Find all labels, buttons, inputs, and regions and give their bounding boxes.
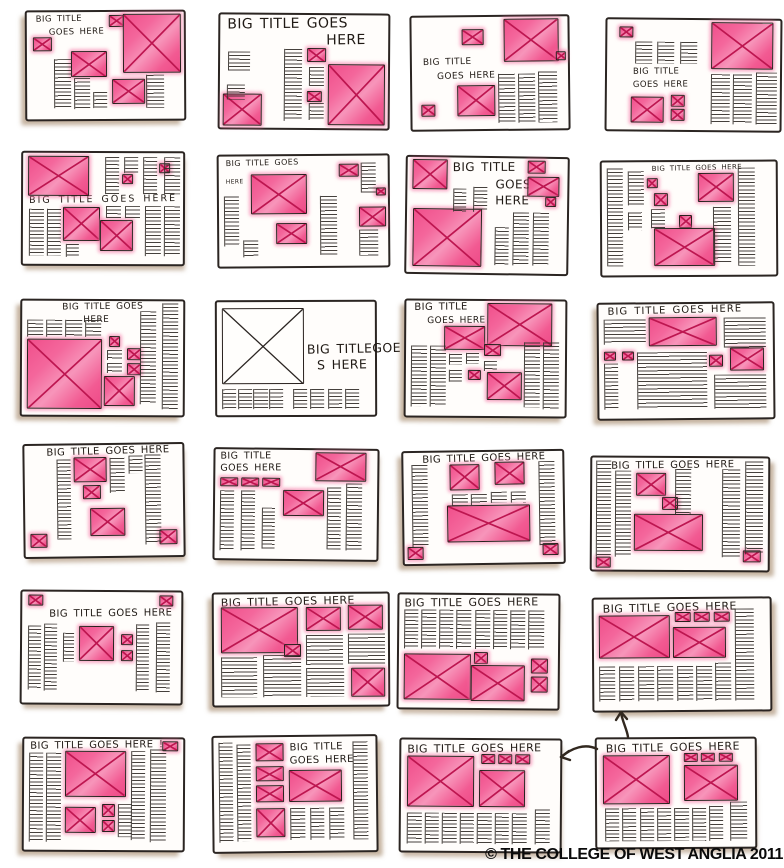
image-placeholder bbox=[339, 163, 359, 176]
image-placeholder bbox=[65, 751, 126, 797]
text-column-block bbox=[326, 487, 341, 549]
image-placeholder bbox=[307, 91, 322, 102]
text-column-block bbox=[498, 74, 516, 123]
thumbnail-title-line: BIG TITLE bbox=[633, 68, 679, 77]
layout-thumbnail-r3c1: BIG TITLE GOESHERE bbox=[20, 299, 186, 418]
text-column-block bbox=[452, 494, 468, 505]
image-placeholder bbox=[673, 626, 726, 657]
text-column-block bbox=[421, 609, 436, 649]
text-column-block bbox=[118, 805, 132, 837]
text-column-block bbox=[484, 361, 497, 371]
image-placeholder bbox=[306, 607, 341, 630]
image-placeholder bbox=[220, 478, 238, 487]
text-column-block bbox=[306, 668, 344, 697]
thumbnail-title-line: GOES HERE bbox=[633, 80, 688, 89]
text-column-block bbox=[477, 813, 492, 844]
text-column-block bbox=[715, 663, 731, 701]
text-column-block bbox=[745, 462, 763, 555]
thumbnail-title-line: GOES HERE bbox=[437, 71, 496, 82]
image-placeholder bbox=[701, 753, 715, 762]
thumbnail-title-line: GOES bbox=[495, 178, 531, 190]
text-column-block bbox=[136, 624, 149, 691]
text-column-block bbox=[310, 807, 325, 839]
text-column-block bbox=[493, 610, 508, 650]
wireframe-sketch-sheet: BIG TITLEGOES HEREBIG TITLE GOESHEREBIG … bbox=[0, 0, 784, 868]
image-placeholder bbox=[479, 770, 525, 807]
image-placeholder bbox=[33, 37, 52, 51]
image-placeholder bbox=[649, 316, 717, 346]
text-column-block bbox=[657, 808, 671, 840]
image-placeholder bbox=[636, 472, 666, 496]
image-placeholder bbox=[634, 514, 703, 551]
text-column-block bbox=[348, 634, 385, 664]
text-column-block bbox=[146, 75, 163, 108]
text-column-block bbox=[219, 491, 234, 551]
image-placeholder bbox=[468, 370, 481, 380]
layout-thumbnail-r3c3: BIG TITLEGOES HERE bbox=[404, 298, 568, 418]
text-column-block bbox=[329, 807, 344, 839]
text-column-block bbox=[411, 465, 428, 547]
image-placeholder bbox=[531, 659, 549, 674]
thumbnail-title-line: BIG TITLE bbox=[290, 742, 344, 753]
text-column-block bbox=[755, 72, 776, 125]
text-column-block bbox=[466, 353, 479, 365]
text-column-block bbox=[657, 42, 674, 64]
thumbnail-title-line: S HERE bbox=[316, 358, 366, 372]
layout-thumbnail-r5c1: BIG TITLE GOES HERE bbox=[20, 589, 184, 705]
image-placeholder bbox=[403, 653, 470, 700]
text-column-block bbox=[29, 753, 44, 842]
text-column-block bbox=[236, 744, 252, 841]
image-placeholder bbox=[481, 754, 495, 764]
text-column-block bbox=[604, 364, 618, 410]
text-column-block bbox=[107, 350, 122, 360]
image-placeholder bbox=[256, 766, 284, 782]
text-column-block bbox=[222, 389, 236, 409]
text-column-block bbox=[238, 389, 252, 409]
image-placeholder bbox=[684, 765, 738, 801]
text-column-block bbox=[542, 343, 558, 410]
text-column-block bbox=[124, 158, 138, 174]
text-column-block bbox=[221, 657, 258, 697]
image-placeholder bbox=[359, 206, 386, 227]
thumbnail-title-line: GOES HERE bbox=[49, 28, 105, 38]
text-column-block bbox=[262, 507, 275, 549]
image-placeholder bbox=[102, 820, 115, 832]
text-column-block bbox=[605, 808, 619, 840]
text-column-block bbox=[733, 74, 752, 125]
text-column-block bbox=[149, 749, 165, 842]
text-column-block bbox=[145, 454, 162, 544]
thumbnail-title-line: BIG TITLE GOES HERE bbox=[422, 452, 545, 466]
thumbnail-title-line: BIG TITLE bbox=[452, 161, 515, 173]
image-placeholder bbox=[654, 227, 715, 266]
text-column-block bbox=[143, 158, 158, 195]
thumbnail-title-line: BIG TITLE bbox=[36, 15, 82, 25]
image-placeholder bbox=[545, 197, 556, 207]
image-placeholder bbox=[470, 665, 524, 702]
text-column-block bbox=[491, 492, 507, 503]
text-column-block bbox=[494, 227, 509, 265]
text-column-block bbox=[144, 206, 160, 256]
text-column-block bbox=[510, 610, 525, 650]
thumbnail-title-line: BIG TITLE GOES HERE bbox=[49, 608, 172, 619]
text-column-block bbox=[107, 363, 122, 373]
text-column-block bbox=[709, 806, 723, 841]
image-placeholder bbox=[27, 338, 103, 409]
text-column-block bbox=[63, 633, 74, 662]
thumbnail-title-line: BIG TITLE GOES bbox=[62, 303, 143, 313]
image-placeholder bbox=[413, 208, 483, 268]
image-placeholder bbox=[122, 174, 133, 184]
image-placeholder bbox=[73, 457, 106, 482]
text-column-block bbox=[453, 189, 466, 212]
text-column-block bbox=[651, 210, 665, 228]
text-column-block bbox=[228, 52, 250, 71]
text-column-block bbox=[359, 229, 378, 256]
thumbnail-title-line: BIG TITLE GOES HERE bbox=[652, 164, 742, 173]
image-placeholder bbox=[647, 178, 657, 188]
text-column-block bbox=[410, 345, 426, 406]
image-placeholder bbox=[79, 626, 114, 661]
text-column-block bbox=[46, 753, 61, 842]
text-column-block bbox=[155, 622, 170, 692]
text-column-block bbox=[283, 49, 302, 121]
text-column-block bbox=[494, 813, 509, 844]
text-column-block bbox=[534, 809, 550, 845]
text-column-block bbox=[599, 666, 615, 702]
text-column-block bbox=[475, 610, 490, 650]
layout-thumbnail-r1c3: BIG TITLEGOES HERE bbox=[409, 14, 570, 132]
image-placeholder bbox=[487, 372, 522, 400]
text-column-block bbox=[722, 469, 740, 556]
image-placeholder bbox=[531, 677, 549, 693]
image-placeholder bbox=[30, 533, 48, 548]
image-placeholder bbox=[528, 161, 546, 174]
image-placeholder bbox=[29, 595, 43, 606]
image-placeholder bbox=[631, 96, 664, 123]
text-column-block bbox=[164, 206, 180, 256]
text-column-block bbox=[677, 666, 693, 702]
arrow-left-icon bbox=[561, 746, 597, 760]
text-column-block bbox=[309, 67, 324, 86]
image-placeholder bbox=[102, 804, 115, 816]
image-placeholder bbox=[654, 193, 668, 207]
text-column-block bbox=[622, 808, 636, 840]
image-placeholder bbox=[447, 505, 530, 543]
image-placeholder bbox=[555, 51, 566, 60]
text-column-block bbox=[310, 389, 324, 409]
layout-thumbnail-r3c4: BIG TITLE GOES HERE bbox=[596, 301, 775, 421]
text-column-block bbox=[263, 655, 301, 697]
image-placeholder bbox=[121, 634, 134, 645]
thumbnail-title-line: HERE bbox=[225, 179, 243, 185]
image-placeholder bbox=[474, 651, 488, 664]
layout-thumbnail-r3c2: BIG TITLEGOES HERE bbox=[215, 300, 377, 418]
image-placeholder-unshaded bbox=[222, 308, 304, 385]
image-placeholder bbox=[527, 177, 559, 197]
text-column-block bbox=[54, 59, 72, 108]
text-column-block bbox=[130, 751, 145, 840]
image-placeholder bbox=[122, 14, 180, 73]
text-column-block bbox=[224, 196, 240, 247]
text-column-block bbox=[66, 320, 82, 337]
text-column-block bbox=[449, 370, 462, 382]
text-column-block bbox=[27, 320, 43, 337]
text-column-block bbox=[269, 389, 283, 409]
text-column-block bbox=[533, 213, 550, 266]
layout-thumbnail-r6c3: BIG TITLE GOES HERE bbox=[399, 737, 563, 853]
image-placeholder bbox=[595, 556, 611, 567]
text-column-block bbox=[28, 626, 41, 689]
image-placeholder bbox=[288, 770, 342, 802]
image-placeholder bbox=[63, 207, 100, 240]
text-column-block bbox=[595, 461, 611, 556]
image-placeholder bbox=[622, 351, 634, 360]
text-column-block bbox=[240, 491, 255, 551]
text-column-block bbox=[640, 808, 654, 840]
text-column-block bbox=[637, 352, 707, 410]
text-column-block bbox=[407, 813, 422, 844]
text-column-block bbox=[730, 801, 748, 840]
text-column-block bbox=[320, 195, 337, 255]
layout-thumbnail-r6c4: BIG TITLE GOES HERE bbox=[595, 737, 758, 850]
thumbnail-title-line: HERE bbox=[495, 194, 529, 206]
thumbnail-title-line: BIG TITLE GOES bbox=[227, 17, 348, 32]
image-placeholder bbox=[684, 753, 698, 762]
text-column-block bbox=[607, 168, 623, 266]
text-column-block bbox=[538, 461, 555, 546]
image-placeholder bbox=[120, 650, 133, 661]
text-column-block bbox=[243, 240, 258, 258]
image-placeholder bbox=[348, 605, 383, 630]
layout-thumbnail-r6c1: BIG TITLE GOES HERE ! bbox=[22, 737, 186, 853]
image-placeholder bbox=[729, 348, 764, 371]
text-column-block bbox=[139, 311, 156, 403]
text-column-block bbox=[528, 610, 544, 650]
image-placeholder bbox=[671, 109, 685, 121]
text-column-block bbox=[510, 491, 526, 502]
text-column-block bbox=[425, 813, 440, 844]
image-placeholder bbox=[494, 461, 525, 485]
text-column-block bbox=[518, 74, 536, 123]
text-column-block bbox=[692, 808, 706, 840]
text-column-block bbox=[346, 483, 363, 551]
image-placeholder bbox=[241, 478, 259, 487]
image-placeholder bbox=[516, 755, 530, 765]
image-placeholder bbox=[90, 508, 125, 536]
image-placeholder bbox=[262, 478, 280, 487]
image-placeholder bbox=[283, 490, 324, 517]
image-placeholder bbox=[28, 156, 89, 196]
image-placeholder bbox=[71, 51, 107, 78]
text-column-block bbox=[162, 304, 179, 410]
thumbnail-title-line: GOES HERE bbox=[427, 317, 485, 327]
image-placeholder bbox=[316, 452, 367, 481]
image-placeholder bbox=[603, 755, 670, 804]
text-column-block bbox=[512, 212, 529, 265]
text-column-block bbox=[47, 208, 62, 256]
image-placeholder bbox=[104, 376, 135, 406]
text-column-block bbox=[680, 42, 697, 64]
image-placeholder bbox=[444, 326, 485, 350]
layout-thumbnail-r6c2: BIG TITLEGOES HERE bbox=[211, 734, 378, 854]
thumbnail-title-line: BIG TITLE bbox=[423, 58, 472, 68]
layout-thumbnail-r4c2: BIG TITLEGOES HERE bbox=[212, 447, 379, 562]
layout-thumbnail-r5c2: BIG TITLE GOES HERE bbox=[212, 592, 391, 708]
thumbnail-title-line: BIG TITLE GOES HERE bbox=[29, 194, 177, 206]
text-column-block bbox=[523, 343, 539, 407]
layout-thumbnail-r4c4: BIG TITLE GOES HERE bbox=[590, 456, 771, 573]
thumbnail-title-line: GOES HERE bbox=[290, 755, 354, 767]
text-column-block bbox=[293, 389, 307, 409]
text-column-block bbox=[737, 167, 755, 265]
text-column-block bbox=[635, 41, 652, 63]
image-placeholder bbox=[679, 215, 693, 227]
image-placeholder bbox=[599, 615, 670, 659]
text-column-block bbox=[430, 345, 446, 406]
text-column-block bbox=[674, 808, 688, 840]
layout-thumbnail-r2c2: BIG TITLE GOESHERE bbox=[217, 153, 391, 268]
text-column-block bbox=[290, 808, 305, 840]
text-column-block bbox=[306, 635, 343, 665]
image-placeholder bbox=[160, 530, 178, 545]
text-column-block bbox=[361, 162, 376, 193]
text-column-block bbox=[106, 206, 120, 218]
thumbnail-title-line: BIG TITLE bbox=[414, 303, 468, 314]
text-column-block bbox=[253, 389, 267, 409]
text-column-block bbox=[628, 212, 642, 230]
text-column-block bbox=[44, 624, 57, 691]
layout-thumbnail-r2c4: BIG TITLE GOES HERE bbox=[600, 160, 779, 278]
image-placeholder bbox=[65, 807, 95, 834]
image-placeholder bbox=[498, 755, 512, 765]
text-column-block bbox=[459, 813, 474, 844]
copyright-notice: © THE COLLEGE OF WEST ANGLIA 2011 bbox=[485, 846, 783, 864]
text-column-block bbox=[164, 158, 180, 195]
text-column-block bbox=[85, 320, 101, 337]
image-placeholder bbox=[484, 344, 502, 357]
text-column-block bbox=[345, 389, 359, 409]
image-placeholder bbox=[457, 85, 495, 116]
text-column-block bbox=[74, 78, 90, 109]
layout-thumbnail-r4c1: BIG TITLE GOES HERE bbox=[22, 442, 185, 559]
text-column-block bbox=[604, 319, 646, 344]
image-placeholder bbox=[694, 612, 710, 622]
image-placeholder bbox=[461, 29, 483, 45]
image-placeholder bbox=[407, 755, 474, 807]
text-column-block bbox=[442, 813, 457, 844]
image-placeholder bbox=[718, 753, 732, 762]
image-placeholder bbox=[422, 105, 436, 116]
image-placeholder bbox=[450, 464, 481, 490]
image-placeholder bbox=[83, 485, 101, 500]
layout-thumbnail-r1c4: BIG TITLEGOES HERE bbox=[605, 17, 783, 133]
text-column-block bbox=[713, 207, 731, 264]
text-column-block bbox=[619, 666, 635, 702]
image-placeholder bbox=[352, 668, 385, 697]
image-placeholder bbox=[709, 355, 723, 367]
thumbnail-title-line: BIG TITLEGOE bbox=[307, 341, 401, 355]
text-column-block bbox=[218, 742, 234, 842]
layout-thumbnail-r2c1: BIG TITLE GOES HERE bbox=[21, 151, 185, 267]
text-column-block bbox=[696, 665, 712, 701]
image-placeholder bbox=[112, 79, 145, 104]
layout-thumbnail-r2c3: BIG TITLEGOESHERE bbox=[404, 155, 570, 276]
text-column-block bbox=[105, 157, 120, 194]
thumbnail-title-line: BIG TITLE GOES HERE bbox=[404, 597, 538, 609]
image-placeholder bbox=[412, 159, 448, 189]
layout-thumbnail-r1c1: BIG TITLEGOES HERE bbox=[25, 10, 187, 122]
image-placeholder bbox=[503, 19, 558, 62]
image-placeholder bbox=[376, 187, 386, 195]
text-column-block bbox=[638, 666, 654, 702]
text-column-block bbox=[473, 187, 488, 212]
text-column-block bbox=[456, 609, 471, 649]
image-placeholder bbox=[251, 174, 307, 215]
text-column-block bbox=[56, 460, 71, 540]
layout-thumbnail-r4c3: BIG TITLE GOES HERE bbox=[401, 449, 566, 566]
image-placeholder bbox=[100, 220, 134, 251]
text-column-block bbox=[46, 320, 62, 337]
image-placeholder bbox=[256, 808, 285, 838]
text-column-block bbox=[110, 458, 125, 493]
thumbnail-title-line: HERE bbox=[326, 33, 366, 47]
arrow-up-icon bbox=[616, 712, 628, 737]
text-column-block bbox=[129, 456, 143, 474]
text-column-block bbox=[449, 354, 462, 366]
image-placeholder bbox=[159, 596, 173, 607]
layout-thumbnail-r1c2: BIG TITLE GOESHERE bbox=[218, 12, 391, 130]
image-placeholder bbox=[675, 612, 691, 622]
text-column-block bbox=[724, 317, 766, 348]
layout-thumbnail-r5c3: BIG TITLE GOES HERE bbox=[396, 592, 560, 710]
image-placeholder bbox=[408, 547, 424, 559]
thumbnail-title-line: BIG TITLE GOES HERE bbox=[408, 743, 542, 755]
text-column-block bbox=[714, 374, 766, 409]
image-placeholder bbox=[713, 612, 729, 622]
text-column-block bbox=[439, 609, 454, 649]
text-column-block bbox=[471, 494, 487, 505]
thumbnail-title-line: BIG TITLE GOES bbox=[225, 159, 298, 169]
text-column-block bbox=[512, 813, 527, 844]
image-placeholder bbox=[327, 64, 385, 125]
text-column-block bbox=[675, 469, 691, 514]
image-placeholder bbox=[277, 223, 308, 244]
thumbnail-title-line: GOES HERE bbox=[220, 463, 281, 473]
text-column-block bbox=[29, 208, 44, 256]
thumbnail-title-line: BIG TITLE bbox=[220, 451, 271, 461]
image-placeholder bbox=[256, 743, 284, 762]
text-column-block bbox=[710, 74, 729, 125]
text-column-block bbox=[628, 171, 644, 205]
text-column-block bbox=[227, 85, 246, 100]
text-column-block bbox=[93, 92, 107, 108]
text-column-block bbox=[66, 244, 79, 257]
image-placeholder bbox=[256, 785, 284, 802]
text-column-block bbox=[328, 389, 342, 409]
image-placeholder bbox=[697, 173, 734, 201]
image-placeholder bbox=[671, 95, 685, 107]
text-column-block bbox=[125, 206, 139, 218]
text-column-block bbox=[538, 71, 557, 123]
image-placeholder bbox=[487, 303, 552, 346]
image-placeholder bbox=[604, 351, 616, 360]
layout-thumbnail-r5c4: BIG TITLE GOES HERE bbox=[592, 596, 773, 712]
image-placeholder bbox=[619, 26, 633, 37]
image-placeholder bbox=[109, 336, 120, 346]
text-column-block bbox=[734, 608, 754, 700]
